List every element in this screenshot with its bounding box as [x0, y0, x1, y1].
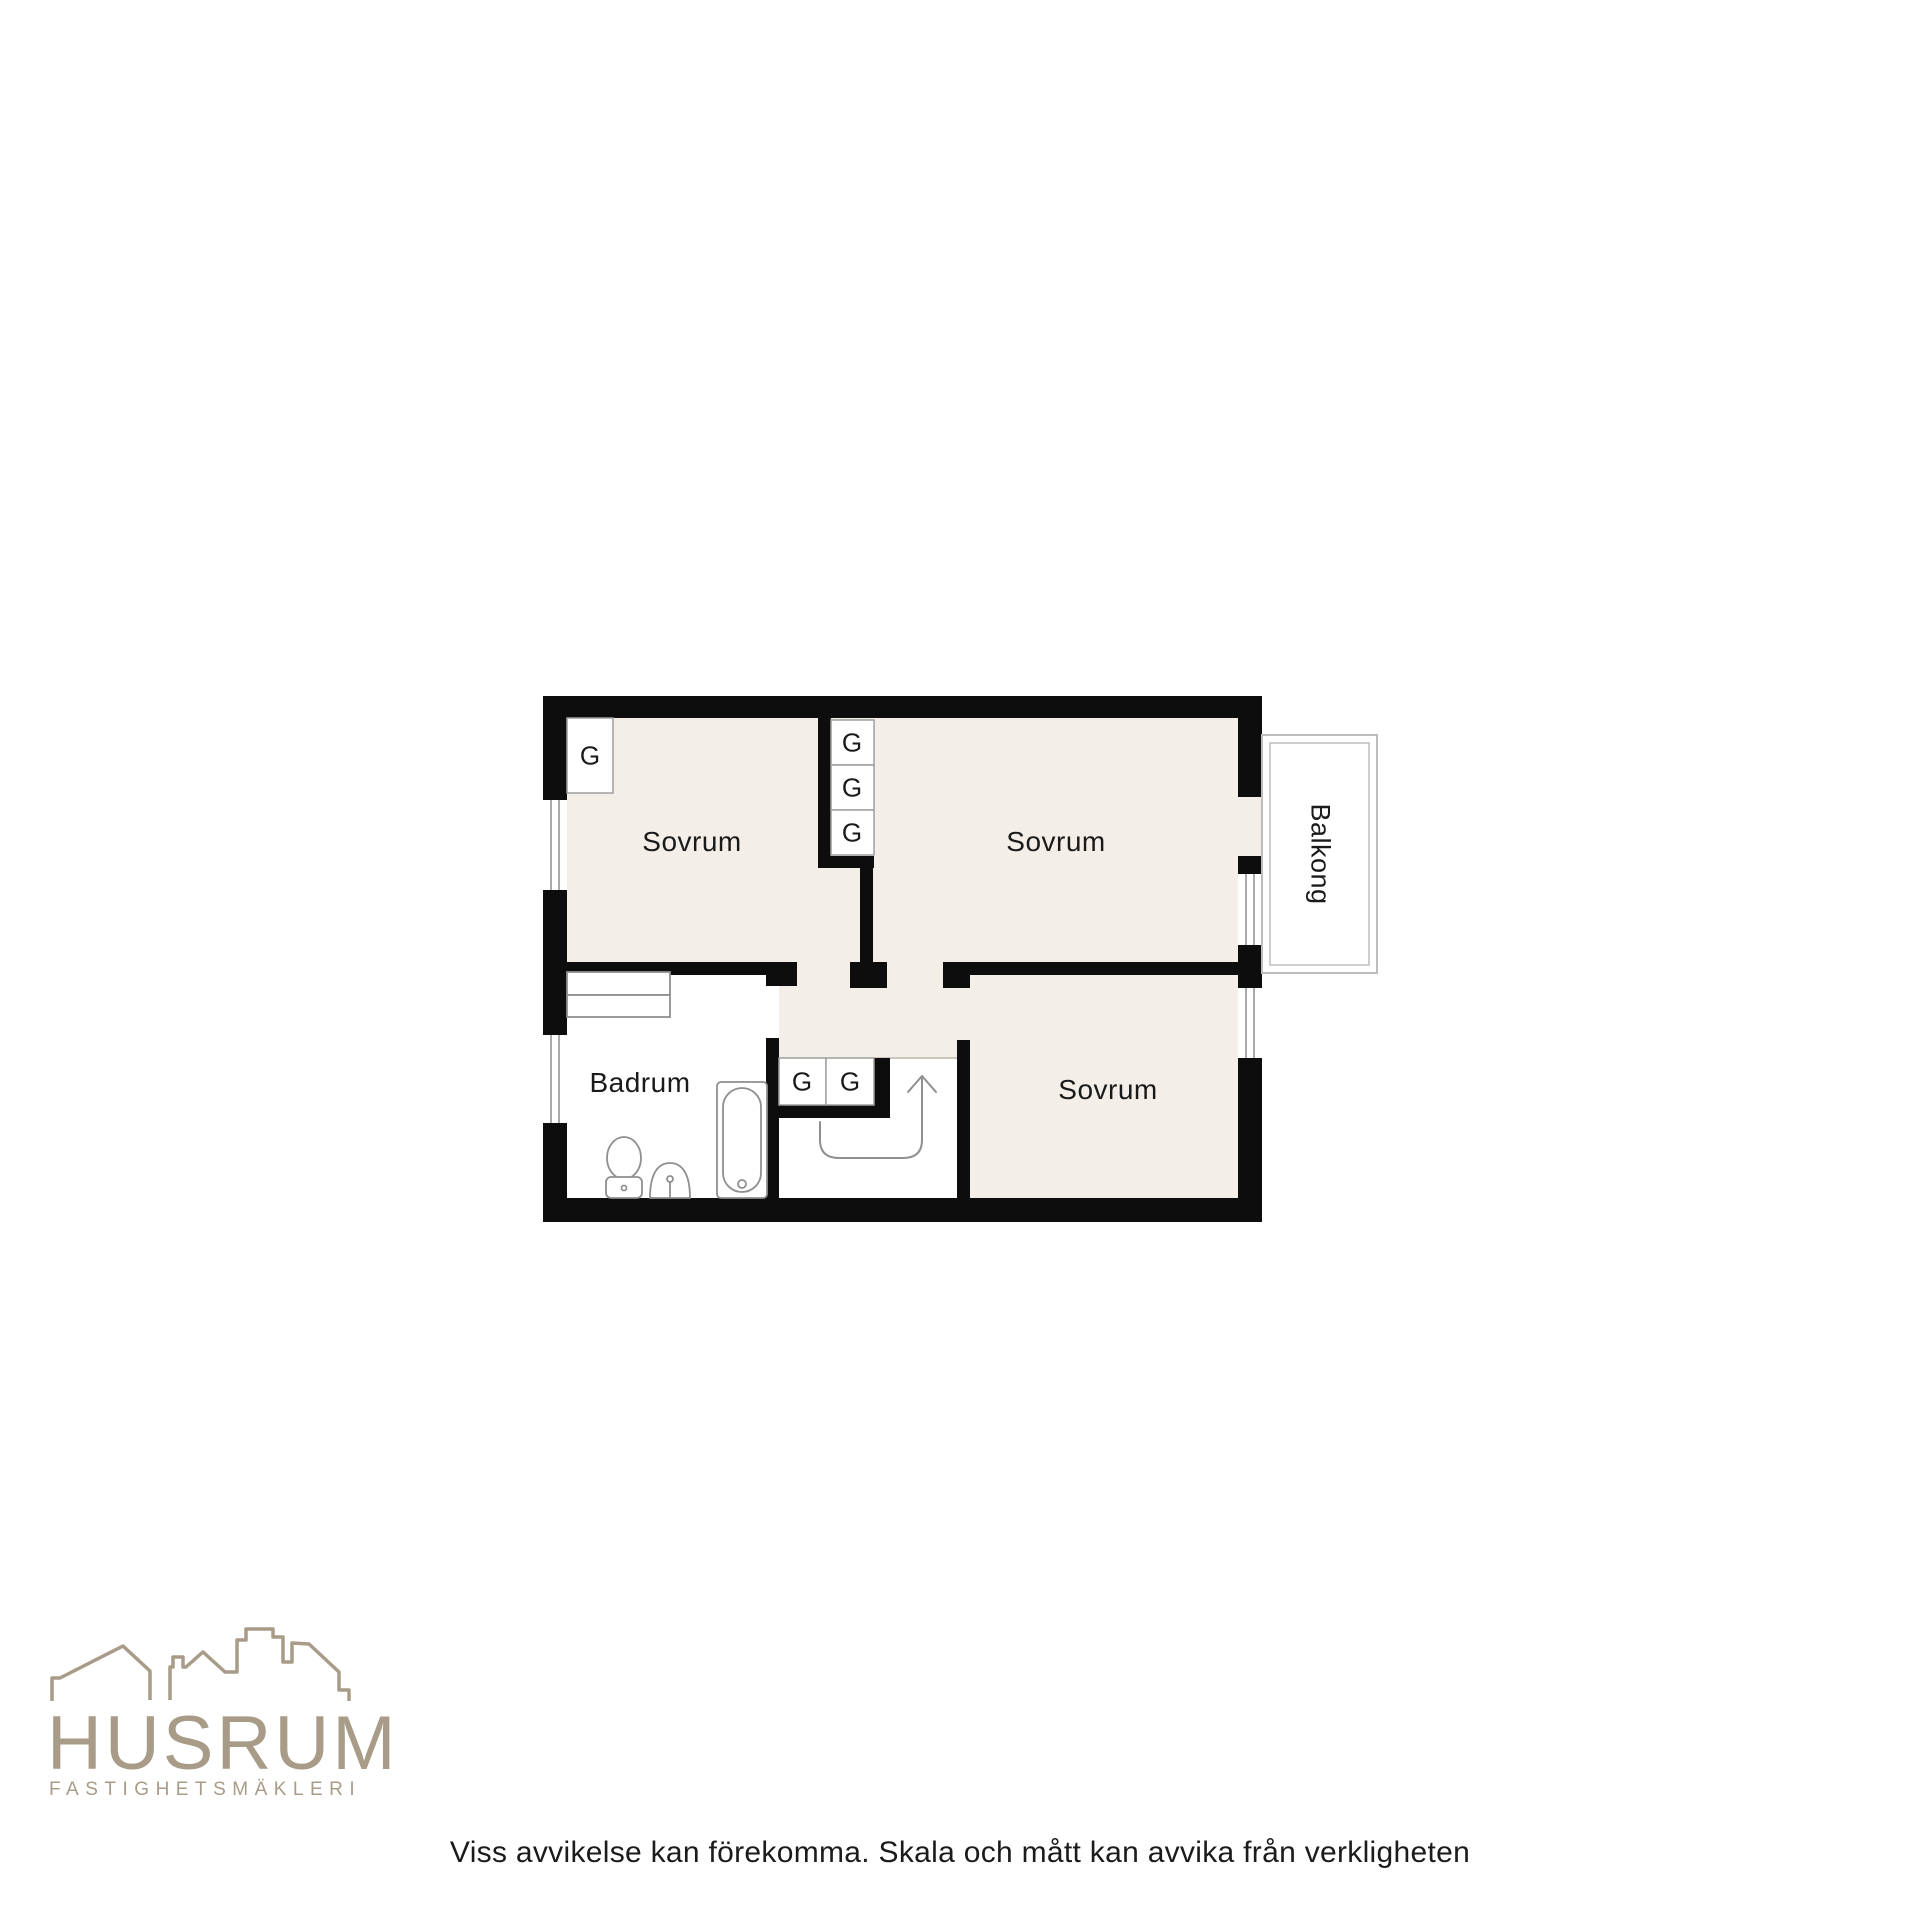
window-icon [543, 800, 567, 890]
closet-label: G [842, 773, 862, 804]
logo-tagline: FASTIGHETSMÄKLERI [49, 1780, 361, 1799]
room-label-badrum: Badrum [589, 1067, 690, 1099]
bathtub-icon [717, 1082, 767, 1198]
closet-label: G [792, 1067, 812, 1098]
window-icon [1238, 874, 1262, 945]
floorplan-page: Sovrum Sovrum Sovrum Badrum Balkong G G … [0, 0, 1920, 1920]
window-icon [543, 1035, 567, 1123]
toilet-icon [606, 1137, 642, 1198]
floor-areas [567, 718, 1262, 1198]
skyline-icon [47, 1622, 357, 1704]
closet-label: G [842, 728, 862, 759]
window-icon [1238, 988, 1262, 1058]
closet-label: G [840, 1067, 860, 1098]
shelf-icon [567, 972, 670, 1017]
room-label-balkong: Balkong [1305, 803, 1336, 904]
room-label-sovrum-bottom: Sovrum [1058, 1074, 1157, 1106]
closet-label: G [842, 818, 862, 849]
husrum-logo: HUSRUM FASTIGHETSMÄKLERI [47, 1622, 357, 1704]
disclaimer-text: Viss avvikelse kan förekomma. Skala och … [450, 1836, 1470, 1870]
room-label-sovrum-top-left: Sovrum [642, 826, 741, 858]
room-label-sovrum-top-right: Sovrum [1006, 826, 1105, 858]
closet-label: G [580, 741, 600, 772]
logo-name: HUSRUM [47, 1706, 399, 1782]
